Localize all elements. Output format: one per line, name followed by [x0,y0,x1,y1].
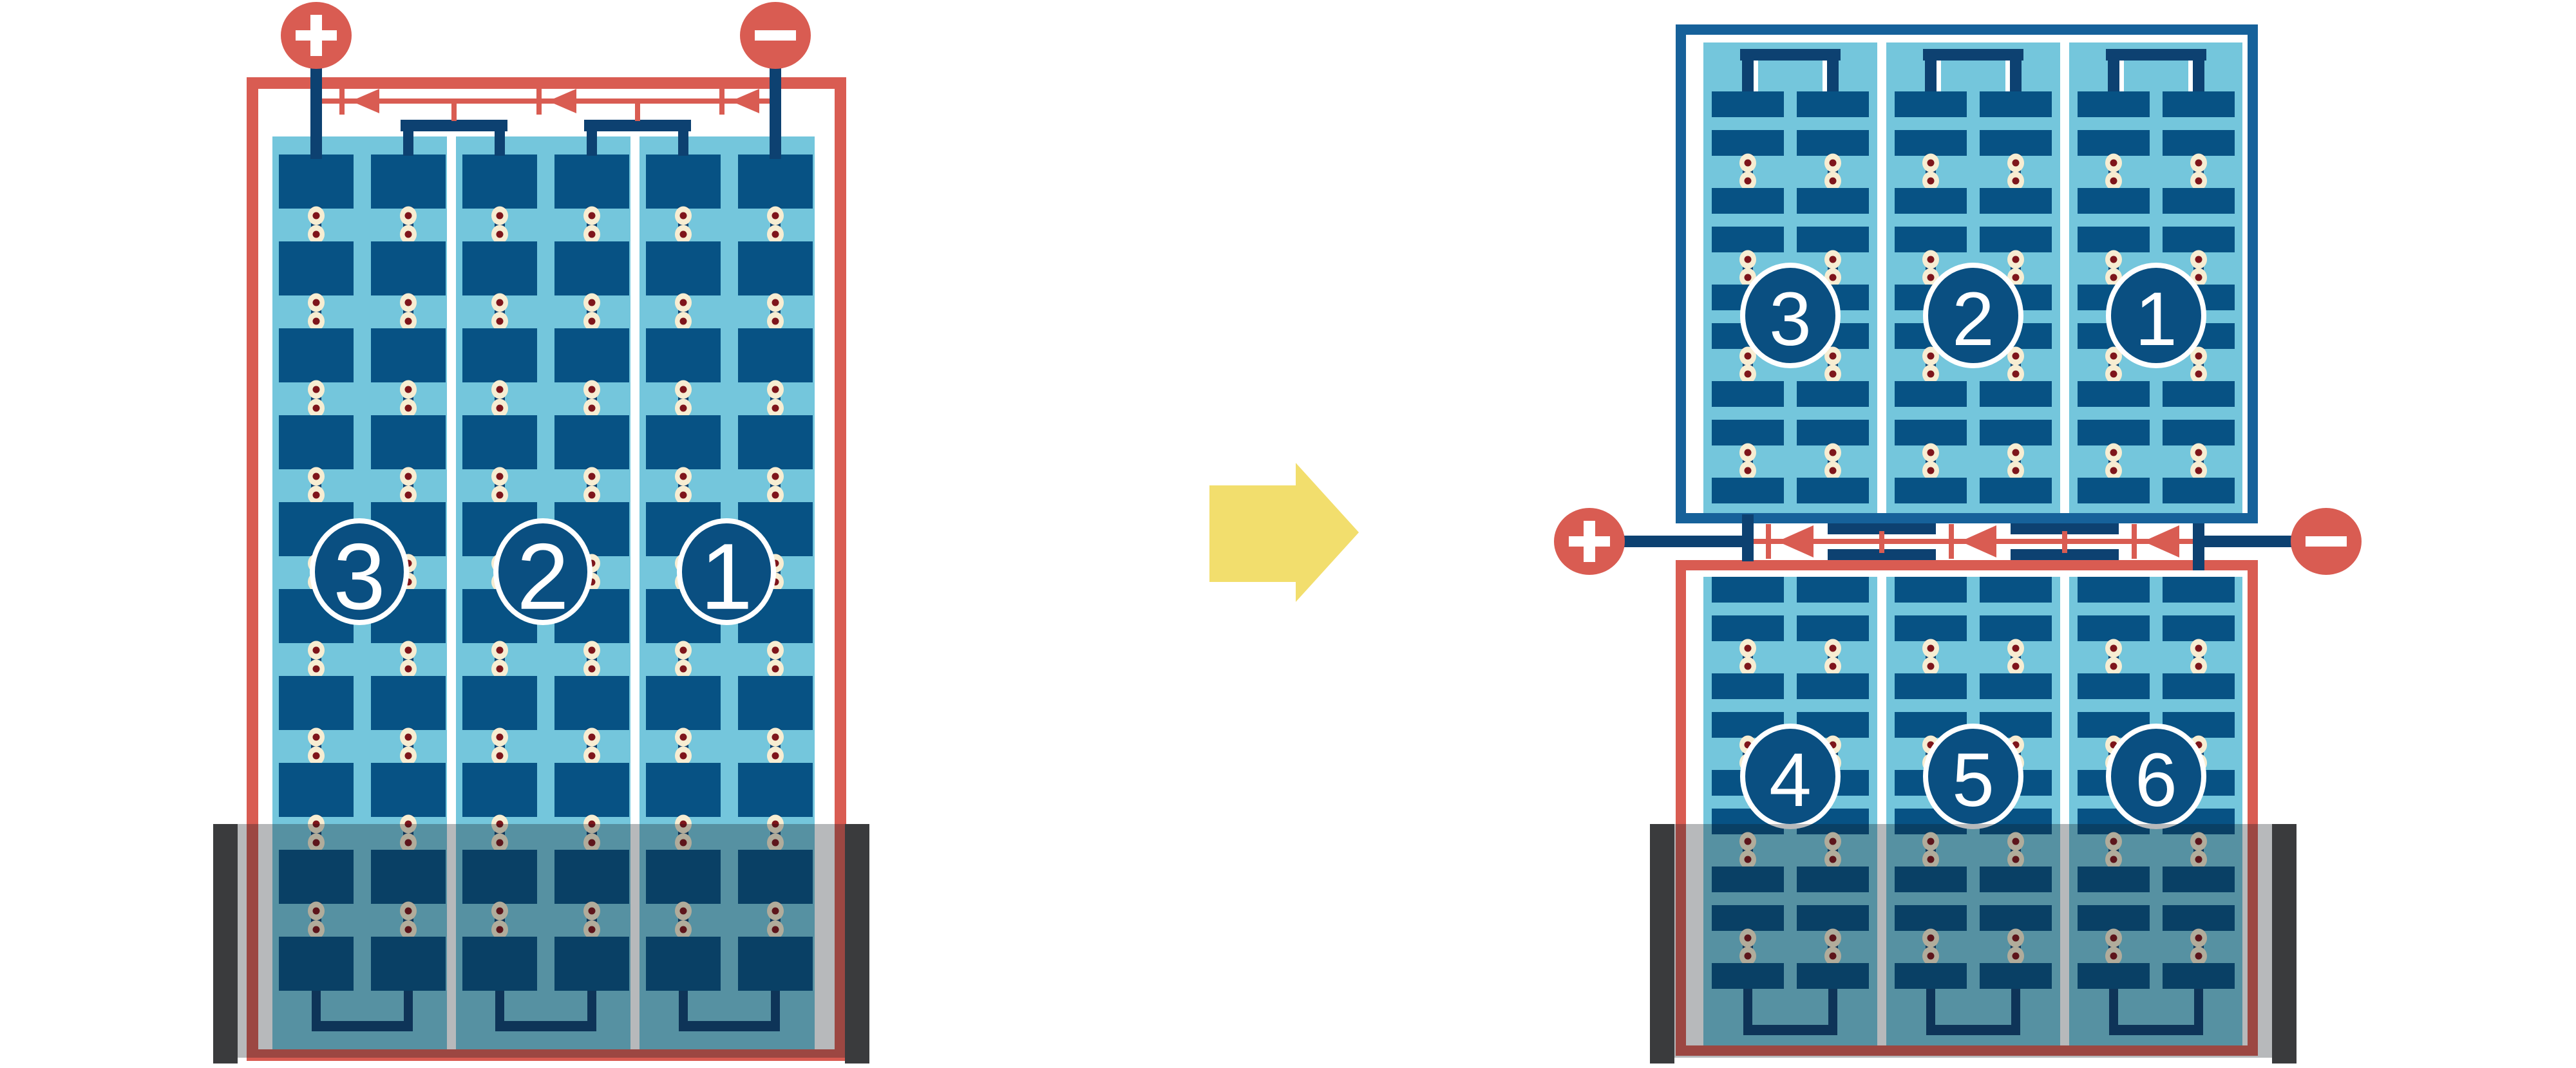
cell-number: 5 [1952,738,1994,823]
tank-liquid-overlay [213,824,869,1058]
cell-number: 3 [333,524,385,629]
after-stack-lower: 456 [1650,565,2297,1063]
cell-number-badge: 5 [1926,726,2021,827]
tank-liquid-overlay [1650,824,2297,1058]
cell-number: 1 [2135,277,2177,362]
parallel-bridges [1740,49,2206,91]
transform-arrow [1209,463,1359,602]
minus-icon [755,30,796,41]
current-flow-wire [1754,524,2193,559]
cell-number-badge: 4 [1743,726,1838,827]
positive-terminal [1554,508,1625,575]
diagram-root: 321321456 [0,0,2576,1068]
before-stack: 321 [213,2,869,1063]
cell-number: 1 [700,524,752,629]
negative-terminal [2291,508,2362,575]
minus-icon [2306,536,2347,547]
electrolyte-tank [1650,824,2297,1063]
positive-terminal [281,2,352,69]
cell-number: 6 [2135,738,2177,823]
cell-number: 2 [1952,277,1994,362]
after-stack-upper: 321 [1681,30,2253,518]
cell-number: 4 [1769,738,1812,823]
current-flow-wire [316,88,775,121]
battery-stack-diagram-canvas: 321321456 [0,0,2576,1068]
cell-number: 2 [516,524,569,629]
cell-number-badge: 1 [2108,265,2204,366]
electrolyte-tank [213,824,869,1063]
cell-number: 3 [1769,277,1812,362]
cell-number-badge: 6 [2108,726,2204,827]
cell-number-badge: 2 [1926,265,2021,366]
cell-number-badge: 3 [1743,265,1838,366]
negative-terminal [740,2,811,69]
